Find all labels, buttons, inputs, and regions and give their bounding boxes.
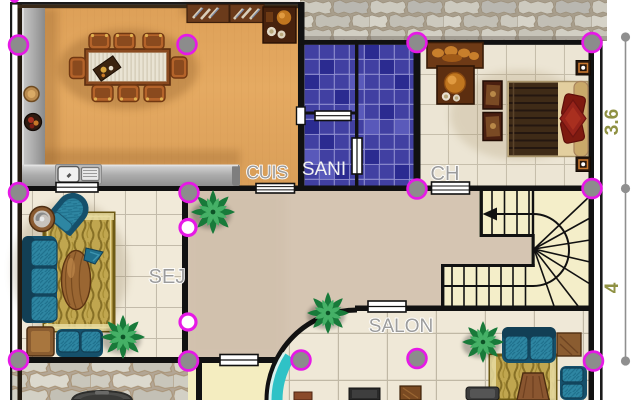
svg-text:SEJ: SEJ bbox=[149, 266, 186, 288]
svg-text:3.6: 3.6 bbox=[602, 109, 623, 135]
svg-text:CH: CH bbox=[431, 163, 460, 185]
svg-text:CUIS: CUIS bbox=[246, 163, 288, 183]
svg-text:SALON: SALON bbox=[369, 316, 433, 337]
svg-text:SANI: SANI bbox=[302, 159, 346, 180]
svg-text:4: 4 bbox=[602, 282, 623, 293]
